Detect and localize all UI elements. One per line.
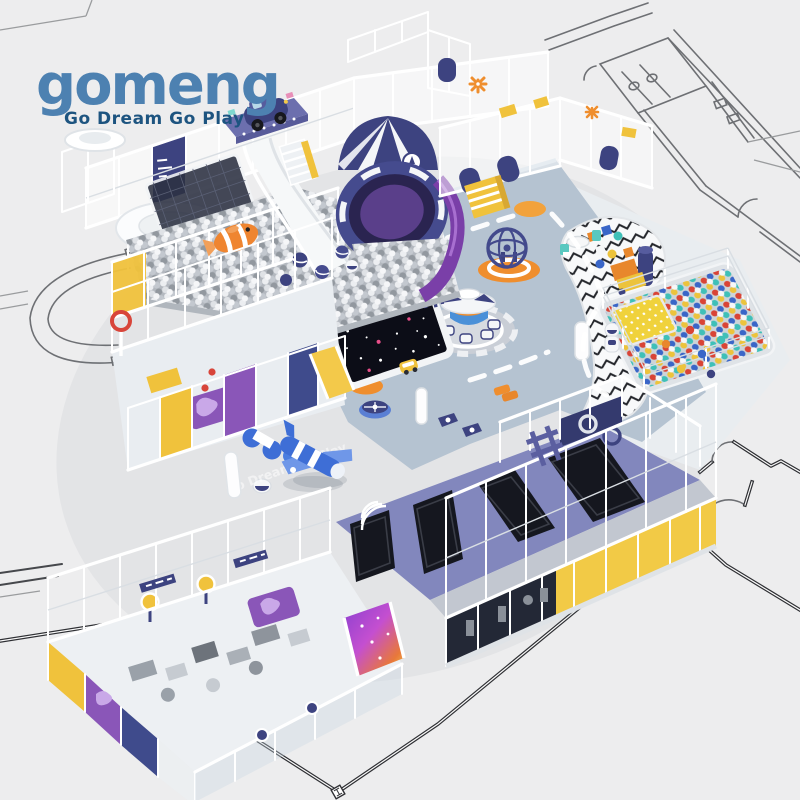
astronaut-figure [605,323,619,352]
playground-render-image: Go Dream Go Play [0,0,800,800]
far-right-frame-block [560,98,652,188]
propeller-toy [470,78,486,92]
brand-logo: gomeng Go Dream Go Play [36,53,279,129]
playground-scene: Go Dream Go Play [0,0,800,800]
propeller-toy [586,107,598,118]
brand-tagline: Go Dream Go Play [64,109,245,129]
toy-bottle [416,388,427,424]
orange-floor-circle [514,201,546,217]
